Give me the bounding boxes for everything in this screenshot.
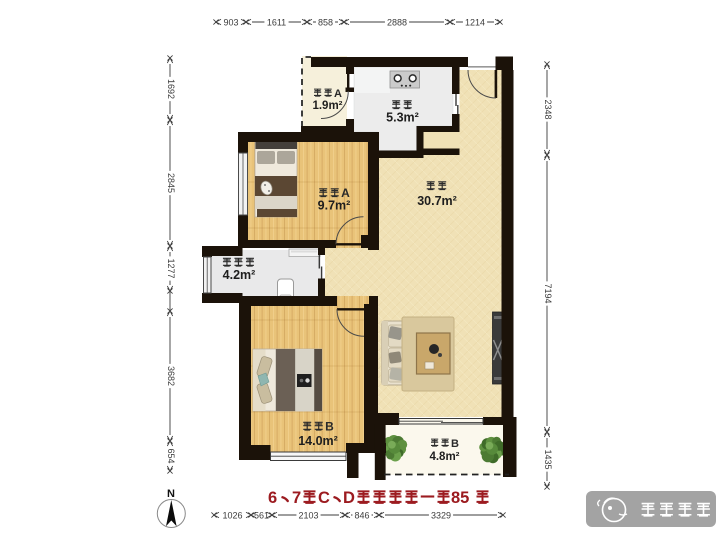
svg-text:4.2m²: 4.2m² — [223, 268, 256, 282]
svg-text:6: 6 — [268, 489, 277, 507]
svg-text:846: 846 — [354, 510, 369, 520]
svg-text:A: A — [334, 88, 342, 100]
svg-text:3682: 3682 — [166, 366, 176, 386]
svg-text:3329: 3329 — [431, 510, 451, 520]
svg-text:2845: 2845 — [166, 173, 176, 193]
svg-text:1611: 1611 — [267, 17, 286, 27]
svg-text:7: 7 — [292, 489, 301, 507]
svg-text:B: B — [451, 438, 459, 450]
svg-text:1435: 1435 — [543, 449, 553, 469]
svg-text:7194: 7194 — [543, 283, 553, 303]
svg-text:9.7m²: 9.7m² — [318, 199, 351, 213]
svg-text:903: 903 — [223, 17, 238, 27]
svg-text:14.0m²: 14.0m² — [298, 434, 338, 448]
svg-text:30.7m²: 30.7m² — [417, 194, 457, 208]
svg-text:858: 858 — [318, 17, 333, 27]
svg-text:2888: 2888 — [387, 17, 407, 27]
svg-text:1214: 1214 — [465, 17, 485, 27]
svg-text:5.3m²: 5.3m² — [386, 111, 419, 125]
svg-text:C: C — [318, 489, 330, 507]
svg-text:4.8m²: 4.8m² — [429, 451, 459, 463]
svg-text:85: 85 — [451, 489, 469, 507]
svg-text:1277: 1277 — [166, 258, 176, 278]
svg-text:1026: 1026 — [222, 510, 242, 520]
svg-text:2348: 2348 — [543, 99, 553, 119]
svg-text:561: 561 — [254, 510, 269, 520]
svg-text:1692: 1692 — [166, 79, 176, 99]
svg-text:2103: 2103 — [298, 510, 318, 520]
svg-text:1.9m²: 1.9m² — [312, 100, 342, 112]
svg-text:B: B — [325, 420, 334, 434]
svg-text:D: D — [343, 489, 355, 507]
svg-text:654: 654 — [166, 448, 176, 463]
svg-text:N: N — [167, 488, 175, 500]
